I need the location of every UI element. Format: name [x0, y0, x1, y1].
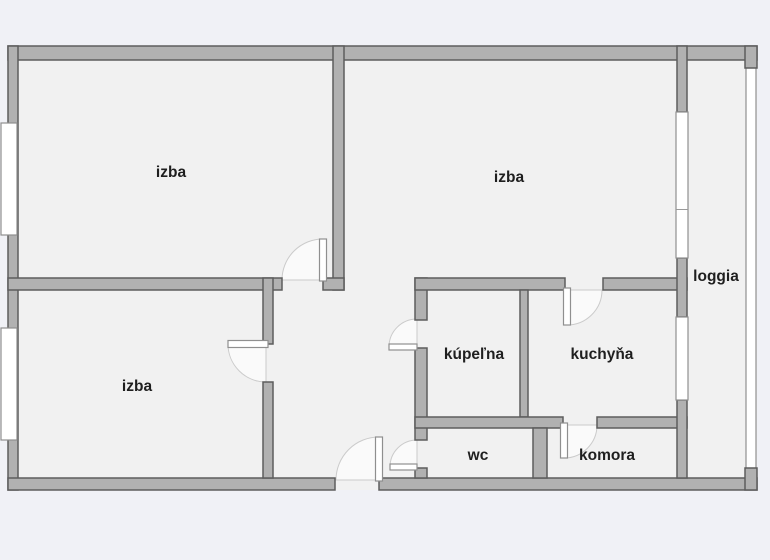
- wall-outer-top: [8, 46, 757, 60]
- wall-bath-top-b: [603, 278, 687, 290]
- wall-kupelna-kuchyna: [520, 290, 528, 417]
- wall-outer-bottom-right: [379, 478, 757, 490]
- door-leaf-izba-top-left: [320, 239, 327, 281]
- label-izba-bottom-left: izba: [122, 378, 153, 395]
- door-leaf-entrance: [376, 437, 383, 481]
- wall-wc-komora: [533, 428, 547, 478]
- label-kuchyna: kuchyňa: [571, 346, 634, 363]
- wall-wc-top-a: [415, 417, 563, 428]
- wall-loggia-left-b: [677, 258, 687, 317]
- wall-izba-tl-bottom-a: [8, 278, 282, 290]
- loggia-glazing: [746, 60, 756, 478]
- wall-loggia-corner-bottom: [745, 468, 757, 490]
- door-leaf-kuchyna: [564, 288, 571, 325]
- floor-plan-page: izba izba izba kúpeľna kuchyňa wc komora…: [0, 0, 770, 560]
- wall-bath-top-a: [415, 278, 565, 290]
- door-leaf-komora: [561, 423, 568, 458]
- label-komora: komora: [579, 447, 635, 464]
- door-leaf-izba-bottom-left: [228, 341, 268, 348]
- window-kuchyna-loggia: [676, 317, 688, 400]
- wall-loggia-left-c: [677, 400, 687, 478]
- window-izba-top-left: [1, 123, 17, 235]
- label-loggia: loggia: [693, 268, 739, 285]
- label-izba-top-left: izba: [156, 164, 187, 181]
- label-izba-top-right: izba: [494, 169, 525, 186]
- wall-loggia-left-a: [677, 46, 687, 112]
- door-leaf-wc: [390, 464, 417, 470]
- wall-wc-top-b: [597, 417, 687, 428]
- floor-plan-drawing: izba izba izba kúpeľna kuchyňa wc komora…: [0, 0, 770, 560]
- wall-outer-bottom-left: [8, 478, 335, 490]
- window-izba-bottom-left: [1, 328, 17, 440]
- wall-hall-left-a: [263, 278, 273, 344]
- wall-between-izbas: [333, 46, 344, 290]
- wall-hall-left-b: [263, 382, 273, 478]
- label-kupelna: kúpeľna: [444, 346, 505, 363]
- door-leaf-kupelna: [389, 344, 417, 350]
- wall-loggia-corner-top: [745, 46, 757, 68]
- label-wc: wc: [467, 447, 489, 464]
- window-izba-loggia: [676, 112, 688, 258]
